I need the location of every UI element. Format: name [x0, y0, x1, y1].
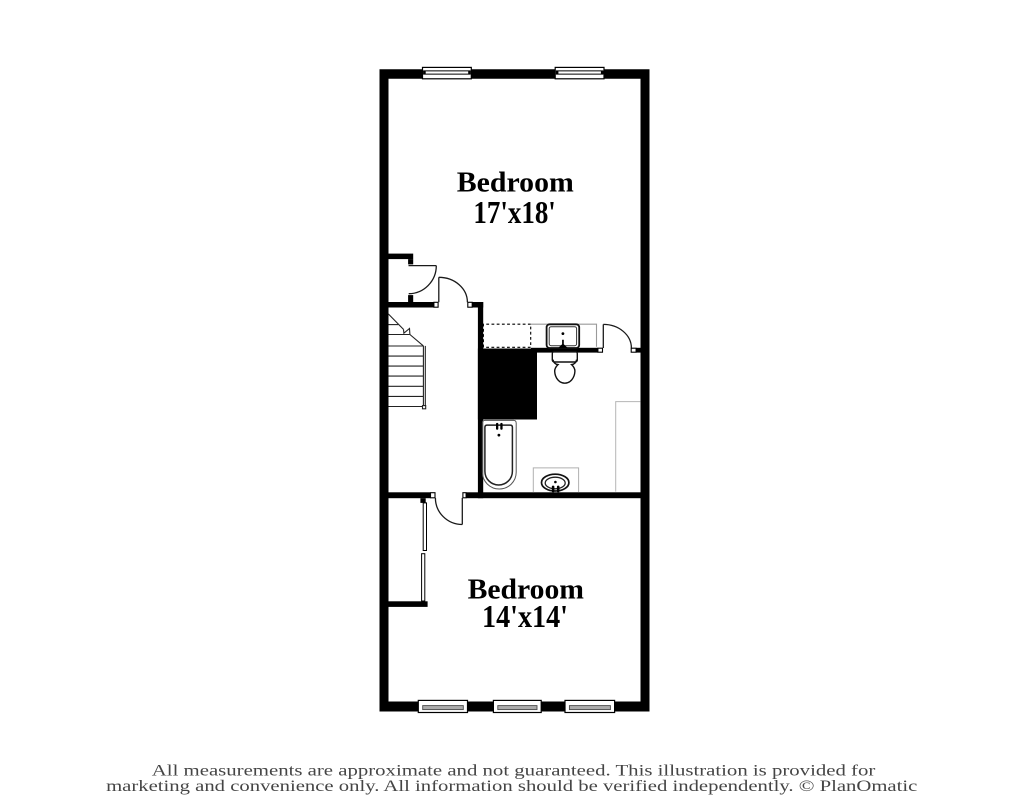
svg-text:17'x18': 17'x18' [473, 194, 555, 230]
svg-text:14'x14': 14'x14' [482, 598, 568, 634]
svg-text:marketing and convenience only: marketing and convenience only. All info… [106, 776, 917, 795]
